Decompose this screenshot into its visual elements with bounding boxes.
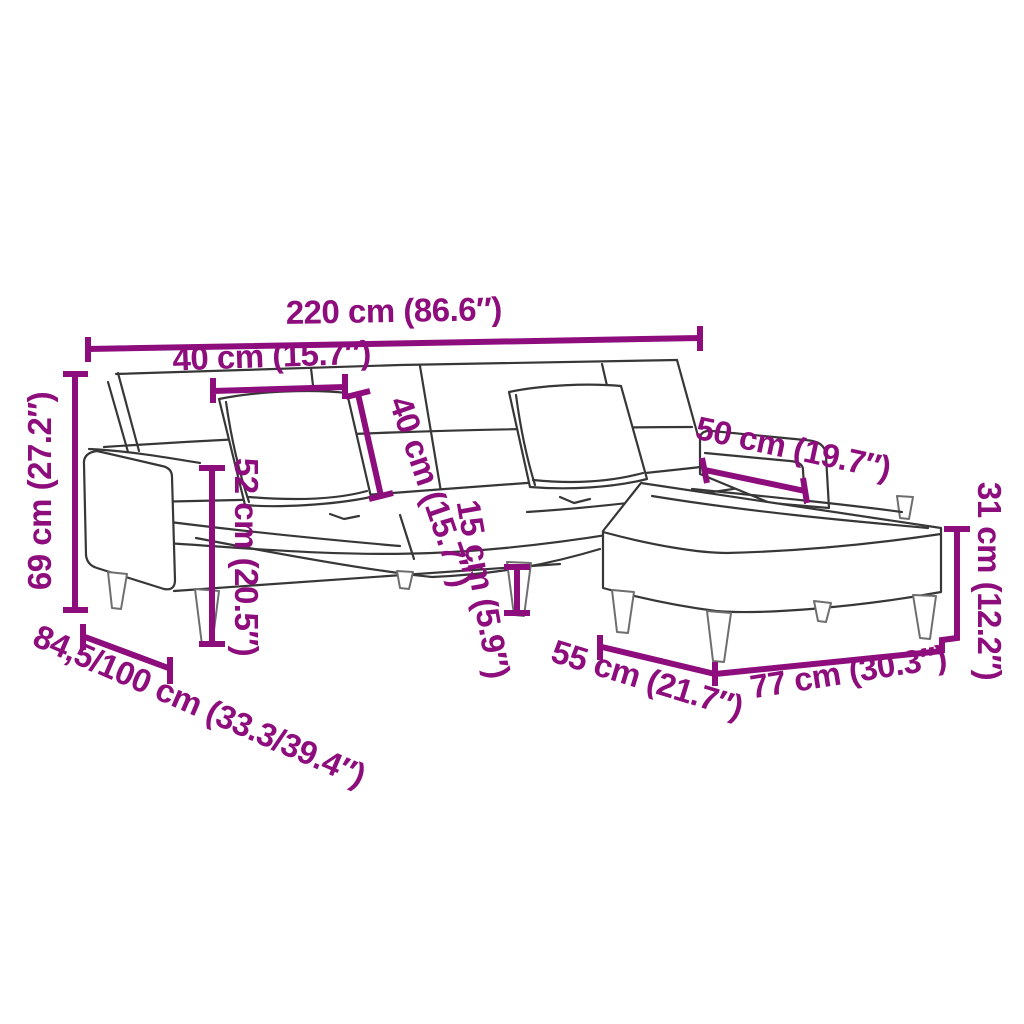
pillow-right	[509, 385, 647, 489]
backrest-left-edge	[108, 382, 128, 452]
sofa-leg-front-left	[108, 572, 127, 609]
dim-label-footstool-height: 31 cm (12.2″)	[971, 482, 1008, 680]
dim-line-footstool-height	[942, 529, 970, 653]
footstool	[603, 483, 941, 612]
sofa-leg-middle	[397, 571, 413, 589]
footstool-leg-front-middle	[707, 611, 731, 662]
armrest-left-front	[84, 451, 175, 589]
backrest-right-edge	[677, 360, 698, 436]
dim-label-seat-back-height: 52 cm (20.5″)	[228, 458, 265, 656]
pillow-right-body	[509, 385, 647, 489]
sofa-leg-back-right	[897, 496, 913, 519]
dim-label-pillow-width: 40 cm (15.7″)	[172, 334, 371, 378]
sofa-leg-left	[195, 589, 219, 646]
backrest-left-edge-inner	[118, 373, 139, 451]
sofa-dimension-drawing: 220 cm (86.6″) 40 cm (15.7″) 40 cm (15.7…	[0, 0, 1024, 1024]
dim-label-overall-height: 69 cm (27.2″)	[21, 392, 58, 590]
dimension-diagram: 220 cm (86.6″) 40 cm (15.7″) 40 cm (15.7…	[0, 0, 1024, 1024]
dim-label-footstool-width: 77 cm (30.3″)	[747, 638, 949, 706]
dim-label-overall-width: 220 cm (86.6″)	[285, 290, 502, 331]
footstool-leg-front-left	[612, 590, 634, 633]
footstool-leg-back	[814, 601, 831, 622]
footstool-body	[603, 483, 941, 612]
footstool-leg-front-right	[913, 595, 936, 639]
